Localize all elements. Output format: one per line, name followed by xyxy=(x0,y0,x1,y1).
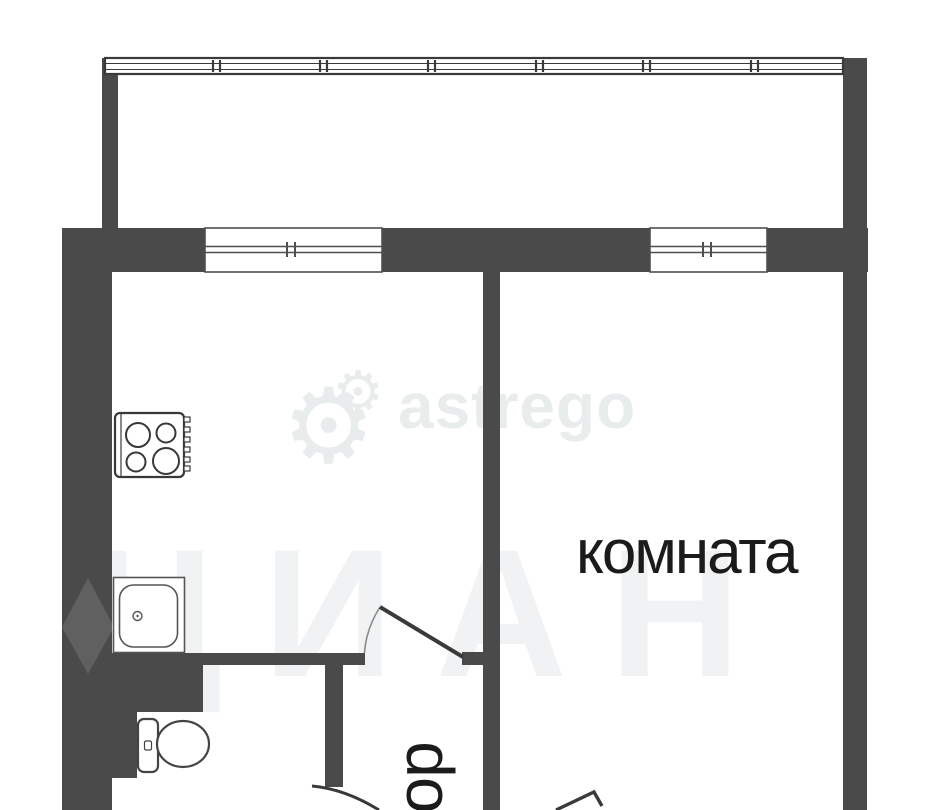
right-wall xyxy=(843,58,867,810)
corridor-label: коридор xyxy=(382,742,456,810)
burner xyxy=(126,423,150,447)
toilet-left-wall xyxy=(112,712,137,778)
watermark-brand: astrego xyxy=(398,370,636,442)
left-wall xyxy=(62,270,112,810)
floorplan-canvas: ⚙ ⚙ astrego ЦИАН xyxy=(0,0,930,810)
gear-small-icon: ⚙ xyxy=(332,360,384,425)
glazing-frame xyxy=(105,58,843,74)
kitchen-bottom-wall xyxy=(62,653,365,665)
toilet-right-wall xyxy=(325,653,343,787)
toilet-bowl xyxy=(157,721,209,767)
floorplan-drawing: ⚙ ⚙ astrego ЦИАН xyxy=(0,0,930,810)
stove-icon xyxy=(115,413,190,477)
kitchen-window xyxy=(205,228,382,272)
kitchen-room-divider-wall xyxy=(483,270,500,810)
bathroom-wall-block xyxy=(62,665,203,712)
balcony-left-wall xyxy=(102,58,118,230)
room-window xyxy=(650,228,767,272)
sink-drain-dot xyxy=(136,615,138,617)
balcony-glazing xyxy=(105,58,843,74)
burner xyxy=(127,453,146,472)
toilet-button xyxy=(145,741,152,750)
burner xyxy=(153,448,179,474)
sink-icon xyxy=(114,578,185,653)
burner xyxy=(157,424,176,443)
door-post xyxy=(462,652,483,665)
room-label: комната xyxy=(576,518,799,587)
sink-basin xyxy=(120,585,178,647)
